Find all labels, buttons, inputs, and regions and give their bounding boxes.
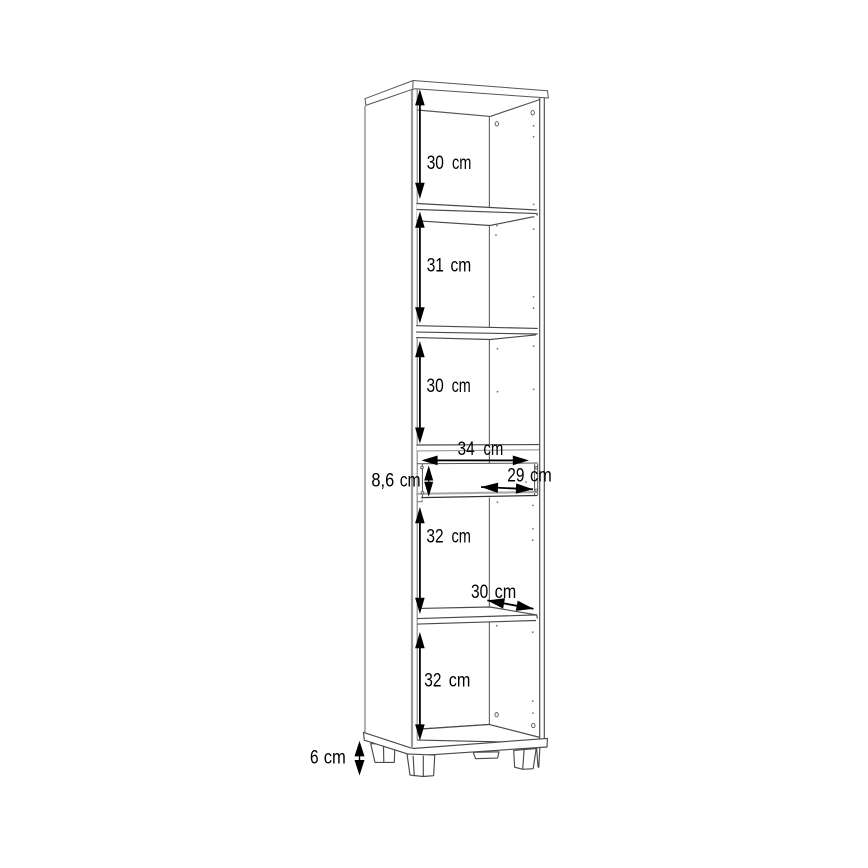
svg-text:cm: cm (452, 153, 471, 174)
svg-text:32: 32 (426, 527, 443, 548)
svg-text:30: 30 (427, 376, 444, 397)
svg-text:cm: cm (400, 471, 421, 492)
svg-text:cm: cm (452, 376, 471, 397)
svg-text:cm: cm (324, 747, 346, 768)
svg-text:8,6: 8,6 (371, 471, 394, 492)
svg-text:cm: cm (530, 466, 552, 487)
svg-text:cm: cm (451, 256, 472, 277)
svg-text:cm: cm (449, 670, 471, 691)
svg-text:30: 30 (471, 582, 488, 603)
svg-text:cm: cm (495, 582, 517, 603)
svg-text:30: 30 (427, 153, 444, 174)
svg-text:29: 29 (507, 466, 524, 487)
svg-text:34: 34 (458, 439, 476, 460)
svg-text:cm: cm (483, 439, 503, 460)
svg-text:31: 31 (427, 256, 444, 277)
svg-text:6: 6 (310, 747, 319, 768)
svg-text:32: 32 (424, 670, 441, 691)
svg-text:cm: cm (452, 527, 471, 548)
